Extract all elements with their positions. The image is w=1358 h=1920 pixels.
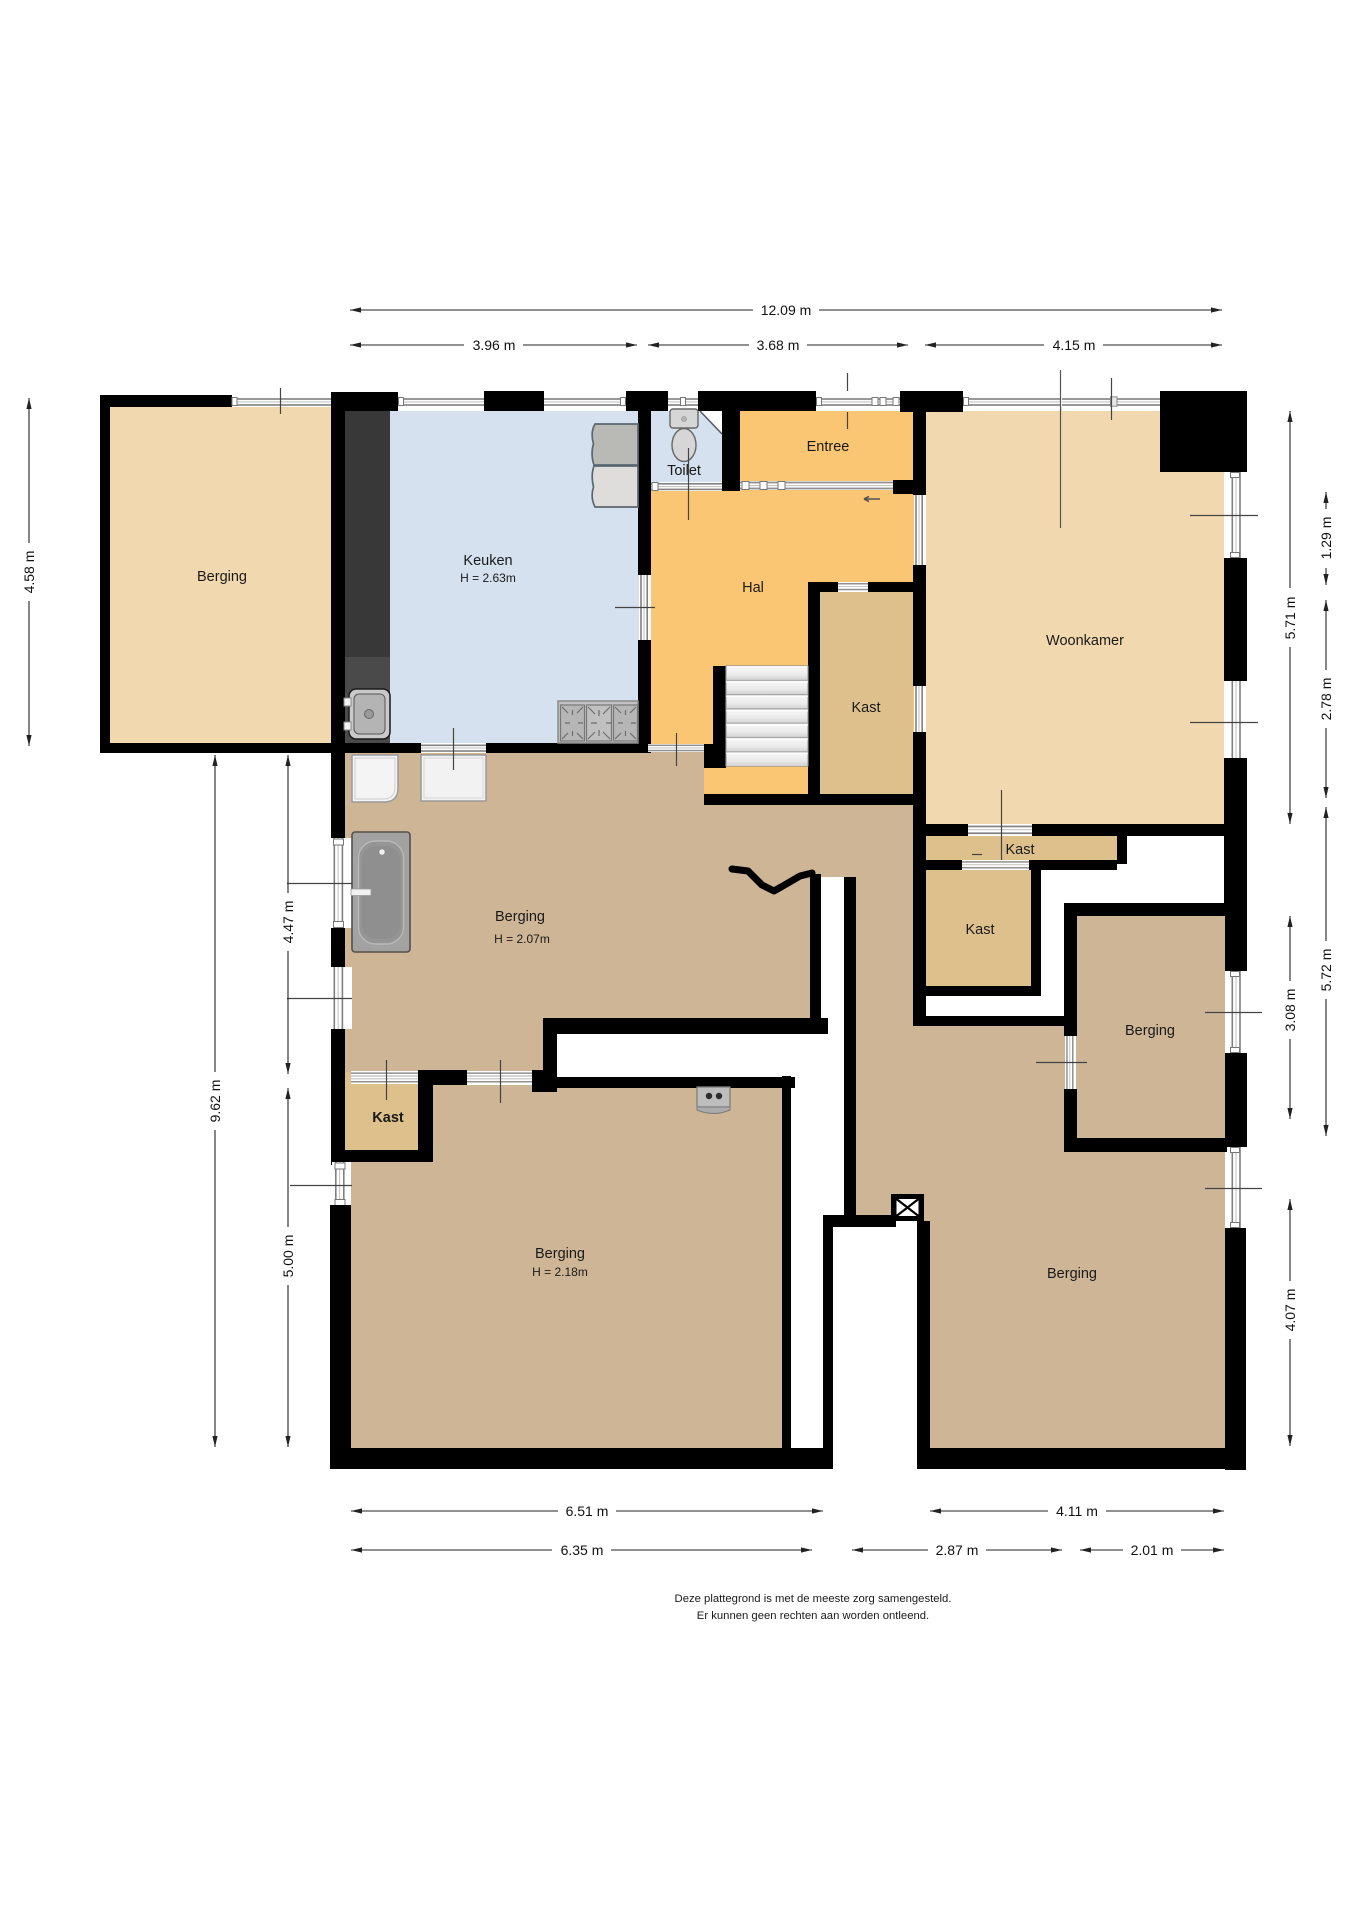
svg-text:H = 2.63m: H = 2.63m: [460, 571, 516, 585]
svg-text:2.87 m: 2.87 m: [936, 1542, 979, 1558]
svg-text:5.00 m: 5.00 m: [280, 1235, 296, 1278]
svg-text:Hal: Hal: [742, 580, 764, 596]
svg-text:9.62 m: 9.62 m: [207, 1080, 223, 1123]
svg-text:Kast: Kast: [1005, 842, 1034, 858]
svg-text:3.96 m: 3.96 m: [473, 337, 516, 353]
svg-text:Berging: Berging: [1047, 1266, 1097, 1282]
svg-text:6.35 m: 6.35 m: [561, 1542, 604, 1558]
svg-text:Woonkamer: Woonkamer: [1046, 633, 1124, 649]
svg-text:6.51 m: 6.51 m: [566, 1503, 609, 1519]
svg-text:Kast: Kast: [372, 1110, 404, 1126]
svg-text:Berging: Berging: [535, 1246, 585, 1262]
svg-text:H = 2.18m: H = 2.18m: [532, 1265, 588, 1279]
svg-text:H = 2.07m: H = 2.07m: [494, 932, 550, 946]
svg-text:12.09 m: 12.09 m: [761, 302, 812, 318]
svg-text:Berging: Berging: [197, 569, 247, 585]
svg-text:1.29 m: 1.29 m: [1318, 517, 1334, 560]
svg-text:Berging: Berging: [495, 909, 545, 925]
svg-text:4.15 m: 4.15 m: [1053, 337, 1096, 353]
svg-text:5.72 m: 5.72 m: [1318, 949, 1334, 992]
svg-text:4.07 m: 4.07 m: [1282, 1289, 1298, 1332]
svg-text:3.68 m: 3.68 m: [757, 337, 800, 353]
svg-text:4.58 m: 4.58 m: [21, 551, 37, 594]
svg-text:Kast: Kast: [965, 922, 994, 938]
svg-text:Berging: Berging: [1125, 1023, 1175, 1039]
svg-text:5.71 m: 5.71 m: [1282, 597, 1298, 640]
svg-text:Entree: Entree: [807, 439, 850, 455]
svg-text:Er kunnen geen rechten aan wor: Er kunnen geen rechten aan worden ontlee…: [697, 1610, 929, 1622]
svg-text:3.08 m: 3.08 m: [1282, 989, 1298, 1032]
svg-text:Toilet: Toilet: [667, 463, 701, 479]
svg-text:4.11 m: 4.11 m: [1056, 1503, 1098, 1519]
svg-text:Deze plattegrond is met de mee: Deze plattegrond is met de meeste zorg s…: [675, 1593, 952, 1605]
svg-text:4.47 m: 4.47 m: [280, 901, 296, 944]
svg-text:Keuken: Keuken: [463, 553, 512, 569]
svg-text:2.78 m: 2.78 m: [1318, 678, 1334, 721]
svg-text:2.01 m: 2.01 m: [1131, 1542, 1174, 1558]
svg-text:Kast: Kast: [851, 700, 880, 716]
